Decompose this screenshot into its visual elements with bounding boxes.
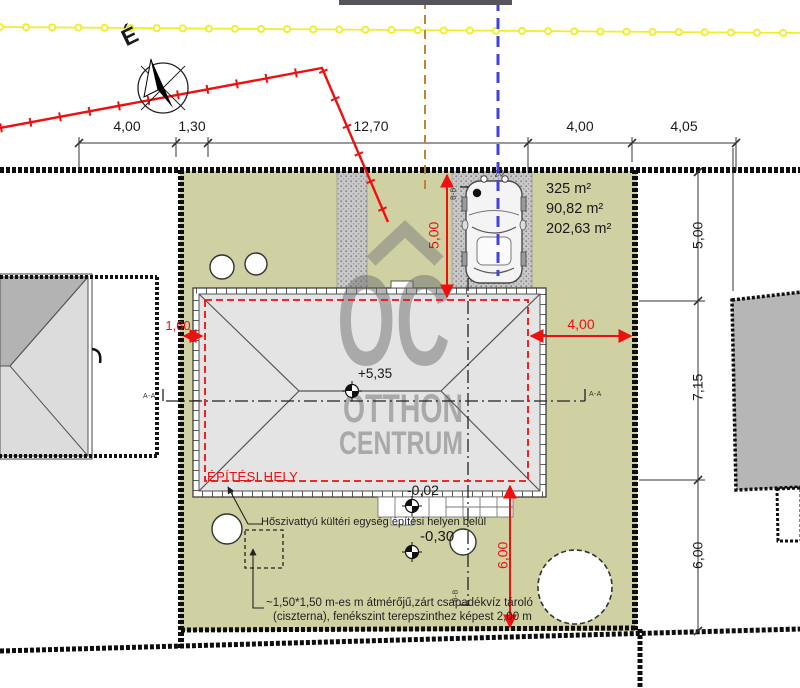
north-compass-icon [138,59,188,113]
watermark-logo: OC OTTHON CENTRUM [337,229,463,461]
cistern-note-line1: ~1,50*1,50 m-es m átmérőjű,zárt csapadék… [266,597,533,609]
dimension-label: 5,00 [691,213,706,257]
dimension-label: 6,00 [691,533,706,577]
red-dimension-label: 5,00 [427,213,442,257]
heat-pump-note: Hőszivattyú kültéri egység építési helye… [261,517,486,529]
building-site-label: ÉPÍTÉSI HELY [207,470,298,484]
terrace-level-label: -0,02 [407,483,439,498]
red-dimension-label: 1,60 [153,319,203,333]
right-neighbor-building [732,292,800,541]
mirror-icon [462,220,468,230]
wheel-icon [462,252,467,266]
section-b-label: B-B [451,187,458,200]
wheel-icon [521,197,526,211]
tree-icon [212,514,242,544]
watermark-oc: OC [337,250,450,393]
red-dimension-label: 6,00 [496,533,511,577]
top-road-edge [339,0,512,5]
door-swing-icon [92,349,100,363]
building-area-label: 90,82 m² [546,202,603,217]
dimension-label: 12,70 [338,119,404,134]
dimension-label: 7,15 [691,365,706,409]
tree-icon [210,255,234,279]
other-area-label: 202,63 m² [546,222,611,237]
wheel-icon [521,252,526,266]
site-plan-linework: OC OTTHON CENTRUM [0,0,800,688]
roof-level-label: +5,35 [358,367,392,381]
mirror-icon [520,220,526,230]
plot-area-label: 325 m² [546,182,591,197]
car-top-view [462,176,526,283]
wheel-icon [462,197,467,211]
yard-level-label: -0,30 [420,529,454,545]
cistern-note-line2: (ciszterna), fenékszint terepszinthez ké… [273,611,532,623]
dimension-label: 4,00 [97,119,157,134]
section-b-label: B-B [453,589,460,602]
section-a-label: A-A [143,393,156,400]
watermark-centrum: CENTRUM [339,425,463,461]
dimension-label: 1,30 [172,119,212,134]
left-neighbor-building [0,274,100,459]
section-a-label: A-A [589,391,602,398]
tree-icon [245,253,267,275]
red-dimension-label: 4,00 [551,317,611,332]
site-plan: OC OTTHON CENTRUM [0,0,800,688]
dimension-label: 4,00 [550,119,610,134]
dimension-label: 4,05 [654,119,714,134]
large-tree-icon [538,550,612,624]
